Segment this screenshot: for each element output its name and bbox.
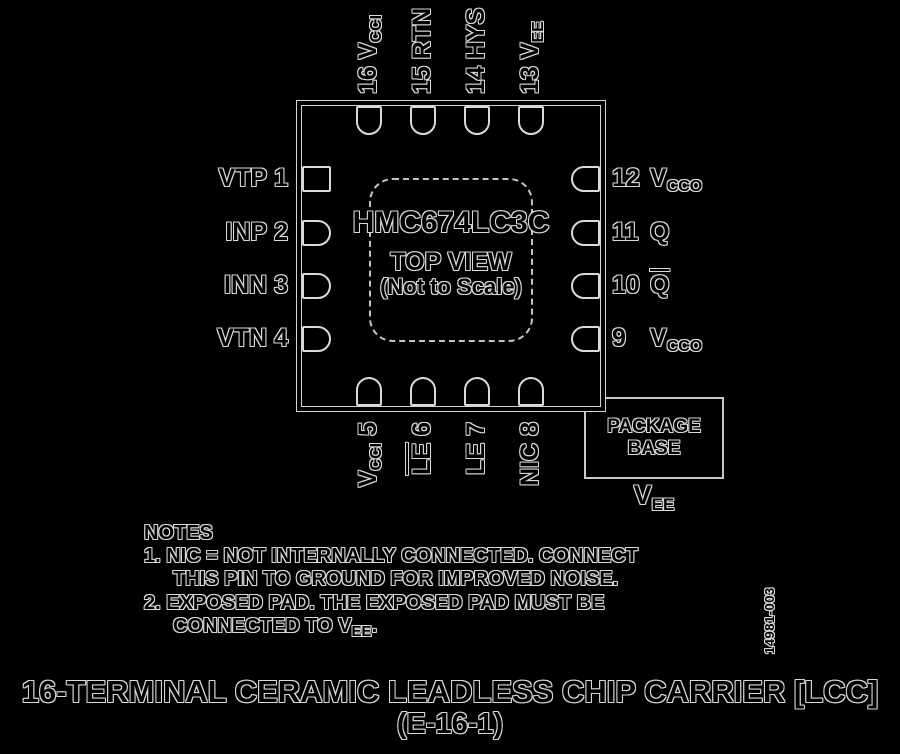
notes-block: NOTES 1. NIC = NOT INTERNALLY CONNECTED.… <box>144 522 638 643</box>
pin-number: 4 <box>274 324 288 352</box>
note-line: 2. EXPOSED PAD. THE EXPOSED PAD MUST BE <box>144 592 638 615</box>
pin-pad-13 <box>518 106 544 135</box>
pin-name-subscript: CCO <box>667 338 703 355</box>
figure-title-line2: (E-16-1) <box>0 708 900 741</box>
pin-number: 5 <box>354 422 382 436</box>
pin-name: RTN <box>408 8 436 59</box>
pin-number: 2 <box>274 218 288 246</box>
pin-label-10: 10Q <box>612 272 669 298</box>
pin-name: V <box>354 43 382 60</box>
pin-pad-7 <box>464 377 490 406</box>
part-number: HMC674LC3C <box>297 206 605 240</box>
pin-pad-2 <box>302 220 331 246</box>
note-line: 1. NIC = NOT INTERNALLY CONNECTED. CONNE… <box>144 545 638 568</box>
pin-pad-6 <box>410 377 436 406</box>
vee-main: V <box>634 480 652 510</box>
scale-note: (Not to Scale) <box>297 274 605 300</box>
pin-number: 16 <box>354 66 382 94</box>
pin-number: 1 <box>274 164 288 192</box>
pin-label-7: LE7 <box>463 422 489 516</box>
pin-name: VTN <box>217 324 267 352</box>
pin-number: 7 <box>462 422 490 436</box>
pin-name: V <box>516 43 544 60</box>
pin-name-subscript: CCI <box>368 443 385 471</box>
pin-label-2: INP2 <box>80 219 288 245</box>
pin-name-subscript: CCI <box>368 15 385 43</box>
pin-pad-8 <box>518 377 544 406</box>
pin-number: 13 <box>516 66 544 94</box>
pin-number: 14 <box>462 66 490 94</box>
pin-number: 15 <box>408 66 436 94</box>
pin-label-1: VTP1 <box>80 165 288 191</box>
pin-number: 12 <box>612 165 650 191</box>
pin-pad-9 <box>571 326 600 352</box>
pin-pad-16 <box>356 106 382 135</box>
pin-name: V <box>650 164 667 192</box>
pin-pad-14 <box>464 106 490 135</box>
notes-header: NOTES <box>144 522 638 545</box>
pin-pad-5 <box>356 377 382 406</box>
pin-pad-11 <box>571 220 600 246</box>
figure-title-line1: 16-TERMINAL CERAMIC LEADLESS CHIP CARRIE… <box>0 674 900 710</box>
pin-name: INP <box>225 218 267 246</box>
chip-outline: HMC674LC3C TOP VIEW (Not to Scale) <box>296 100 606 412</box>
pin-name: V <box>354 470 382 487</box>
pin-label-9: 9VCCO <box>612 325 702 360</box>
pin-label-12: 12VCCO <box>612 165 702 200</box>
pin-name: LE <box>462 443 490 475</box>
top-view-label: TOP VIEW <box>297 248 605 277</box>
pin-number: 6 <box>408 422 436 436</box>
note-subscript: EE <box>352 623 372 640</box>
vee-subscript: EE <box>652 495 675 514</box>
pin-pad-3 <box>302 273 331 299</box>
pin-name: VTP <box>218 164 267 192</box>
pin-name: HYS <box>462 8 490 59</box>
pin-label-13: 13VEE <box>517 8 543 94</box>
pin-label-6: LE6 <box>409 422 435 516</box>
figure-id: 14981-003 <box>762 562 778 654</box>
pin-name: NIC <box>516 443 544 486</box>
package-base-label-line2: BASE <box>586 438 722 460</box>
pin-name-subscript: EE <box>530 21 547 42</box>
pin-pad-4 <box>302 326 331 352</box>
pin-name-subscript: CCO <box>667 178 703 195</box>
pin-label-11: 11Q <box>612 219 669 245</box>
pin-label-3: INN3 <box>80 272 288 298</box>
pin-pad-15 <box>410 106 436 135</box>
pin-label-14: 14HYS <box>463 8 489 94</box>
pin-name: V <box>650 324 667 352</box>
package-base-net-label: VEE <box>584 480 724 515</box>
pin-configuration-figure: PACKAGE BASE VEE HMC674LC3C TOP VIEW (No… <box>0 0 900 754</box>
note-line: CONNECTED TO VEE. <box>144 615 638 643</box>
pin-pad-12 <box>571 166 600 192</box>
pin-label-15: 15RTN <box>409 8 435 94</box>
pin-label-4: VTN4 <box>80 325 288 351</box>
package-base-label-line1: PACKAGE <box>586 416 722 438</box>
pin-label-8: NIC8 <box>517 422 543 516</box>
pin-number: 3 <box>274 271 288 299</box>
pin-number: 8 <box>516 422 544 436</box>
pin-name: Q <box>650 218 669 246</box>
pin-name: LE <box>408 443 436 475</box>
pin-name: INN <box>224 271 267 299</box>
pin-name: Q <box>650 271 669 299</box>
pin-pad-10 <box>571 273 600 299</box>
pin-pad-1 <box>302 166 331 192</box>
note-line: THIS PIN TO GROUND FOR IMPROVED NOISE. <box>144 568 638 591</box>
pin-label-5: VCCI5 <box>355 422 381 516</box>
pin-number: 10 <box>612 272 650 298</box>
pin-label-16: 16VCCI <box>355 8 381 94</box>
pin-number: 11 <box>612 219 650 245</box>
pin-number: 9 <box>612 325 650 351</box>
